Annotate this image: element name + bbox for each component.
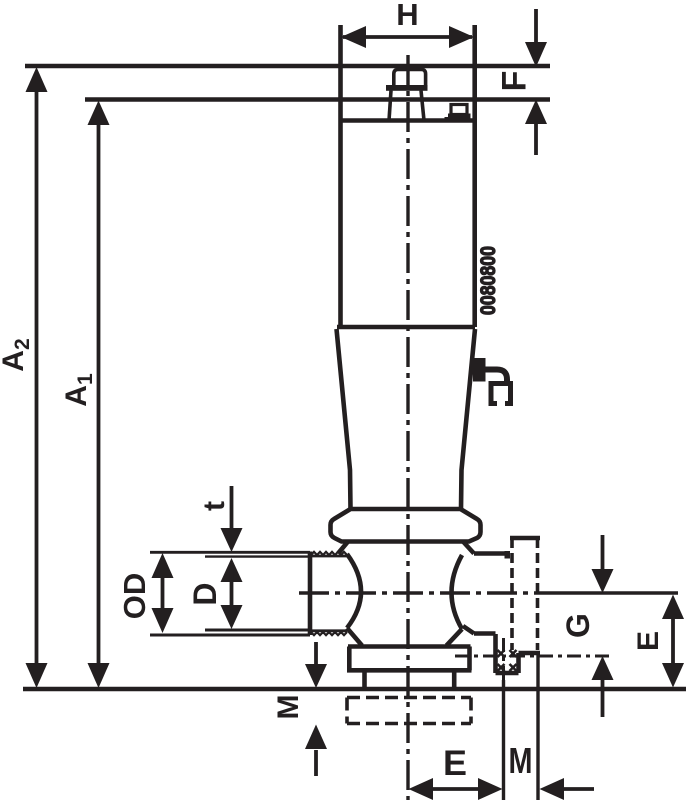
svg-text:M: M [509,740,533,781]
svg-text:M: M [272,695,305,720]
svg-text:A1: A1 [60,373,97,407]
svg-text:E: E [632,631,665,651]
svg-text:A2: A2 [0,338,34,371]
svg-text:OD: OD [117,573,152,620]
svg-text:0080800: 0080800 [477,246,500,315]
svg-text:G: G [560,613,596,638]
svg-text:H: H [396,0,418,32]
svg-text:D: D [187,582,223,605]
svg-text:F: F [496,71,534,92]
svg-text:E: E [443,744,467,783]
svg-text:t: t [198,501,231,511]
